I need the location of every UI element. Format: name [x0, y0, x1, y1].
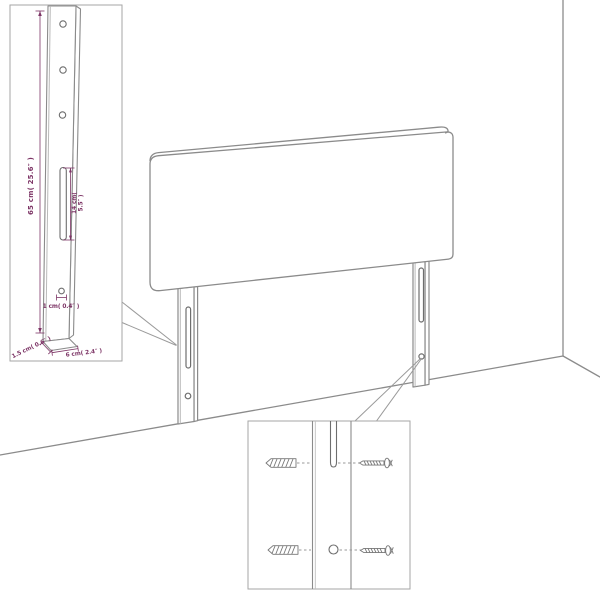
headboard-left-leg	[178, 286, 198, 424]
inset-mounting-frame	[248, 421, 410, 589]
left-callout-leader-upper	[122, 302, 177, 345]
dim-label-slot-length-line1: 14 cm(	[72, 192, 78, 214]
inset-leg-small-hole	[59, 288, 65, 294]
right-callout-leader-right	[377, 358, 423, 421]
left-callout-leader-lower	[122, 323, 177, 346]
right-callout-leader-left	[355, 358, 421, 421]
left-leg-slot	[186, 307, 191, 368]
inset-leg-detail: 65 cm( 25.6″ ) 14 cm( 5.5″ ) 1 cm( 0.4″ …	[10, 5, 122, 361]
screw-bottom-head	[386, 546, 391, 556]
assembly-diagram: 65 cm( 25.6″ ) 14 cm( 5.5″ ) 1 cm( 0.4″ …	[0, 0, 600, 600]
floor-line-left-1	[0, 424, 178, 455]
screw-top-head	[385, 458, 390, 468]
left-leg-hole	[185, 393, 191, 399]
wall-plug-bottom	[268, 546, 298, 555]
inset-leg-hole-3	[59, 112, 65, 118]
floor-line-right	[563, 356, 600, 377]
inset-leg-hole-1	[60, 21, 66, 27]
inset-leg-slot	[60, 168, 66, 241]
dim-label-slot-length-line2: 5.5″ )	[79, 194, 85, 211]
floor-line-left-3	[429, 356, 563, 380]
headboard-right-leg	[413, 261, 429, 387]
callout-leader-lines	[122, 302, 422, 421]
diagram-canvas: 65 cm( 25.6″ ) 14 cm( 5.5″ ) 1 cm( 0.4″ …	[0, 0, 600, 600]
dim-label-hole-diameter: 1 cm( 0.4″ )	[43, 304, 80, 310]
dim-label-leg-height: 65 cm( 25.6″ )	[27, 157, 35, 215]
wall-plug-top	[266, 459, 296, 468]
headboard-panel	[150, 127, 453, 291]
right-leg-slot	[419, 268, 424, 322]
panel-front-face	[150, 132, 453, 291]
inset-leg-hole-2	[60, 67, 66, 73]
inset-mounting-detail	[248, 421, 410, 589]
